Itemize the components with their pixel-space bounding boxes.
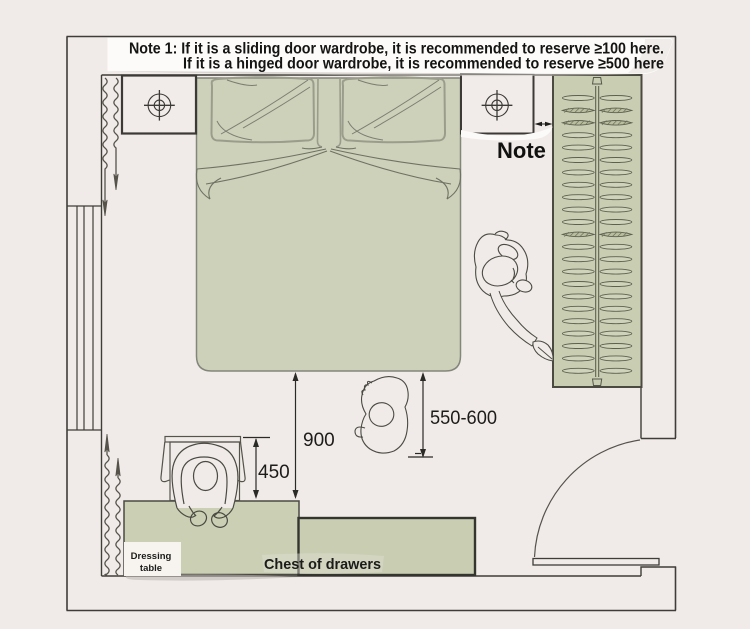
svg-text:Dressing: Dressing xyxy=(131,551,172,562)
svg-text:900: 900 xyxy=(303,430,335,451)
svg-text:table: table xyxy=(140,563,162,574)
svg-text:Chest of drawers: Chest of drawers xyxy=(264,556,381,573)
svg-text:If it is a hinged door wardrob: If it is a hinged door wardrobe, it is r… xyxy=(183,56,664,73)
svg-text:Note: Note xyxy=(497,138,546,163)
svg-text:450: 450 xyxy=(258,462,290,483)
svg-text:550-600: 550-600 xyxy=(430,408,497,429)
